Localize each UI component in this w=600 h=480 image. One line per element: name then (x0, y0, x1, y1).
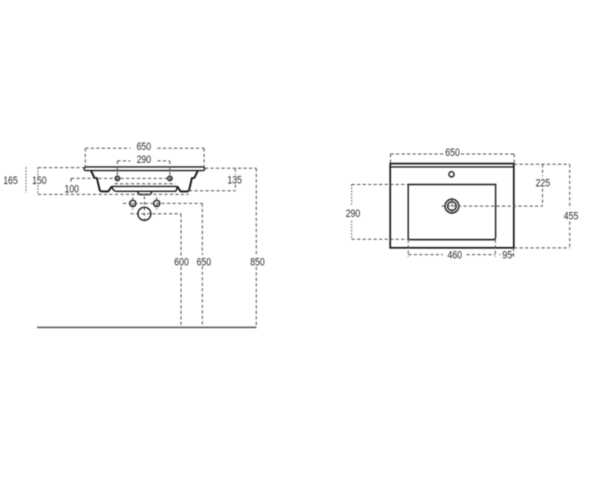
svg-text:135: 135 (227, 175, 242, 187)
svg-text:600: 600 (174, 256, 189, 268)
svg-text:650: 650 (197, 256, 212, 268)
svg-text:850: 850 (250, 256, 265, 268)
svg-text:290: 290 (346, 208, 361, 220)
svg-text:650: 650 (137, 141, 152, 153)
svg-text:460: 460 (448, 250, 463, 262)
svg-text:150: 150 (32, 175, 47, 187)
svg-text:650: 650 (445, 147, 460, 159)
svg-text:290: 290 (137, 154, 152, 166)
svg-text:95: 95 (502, 249, 512, 261)
svg-text:225: 225 (536, 178, 551, 190)
svg-text:455: 455 (564, 210, 579, 222)
svg-text:165: 165 (3, 175, 17, 187)
svg-text:100: 100 (65, 183, 80, 195)
